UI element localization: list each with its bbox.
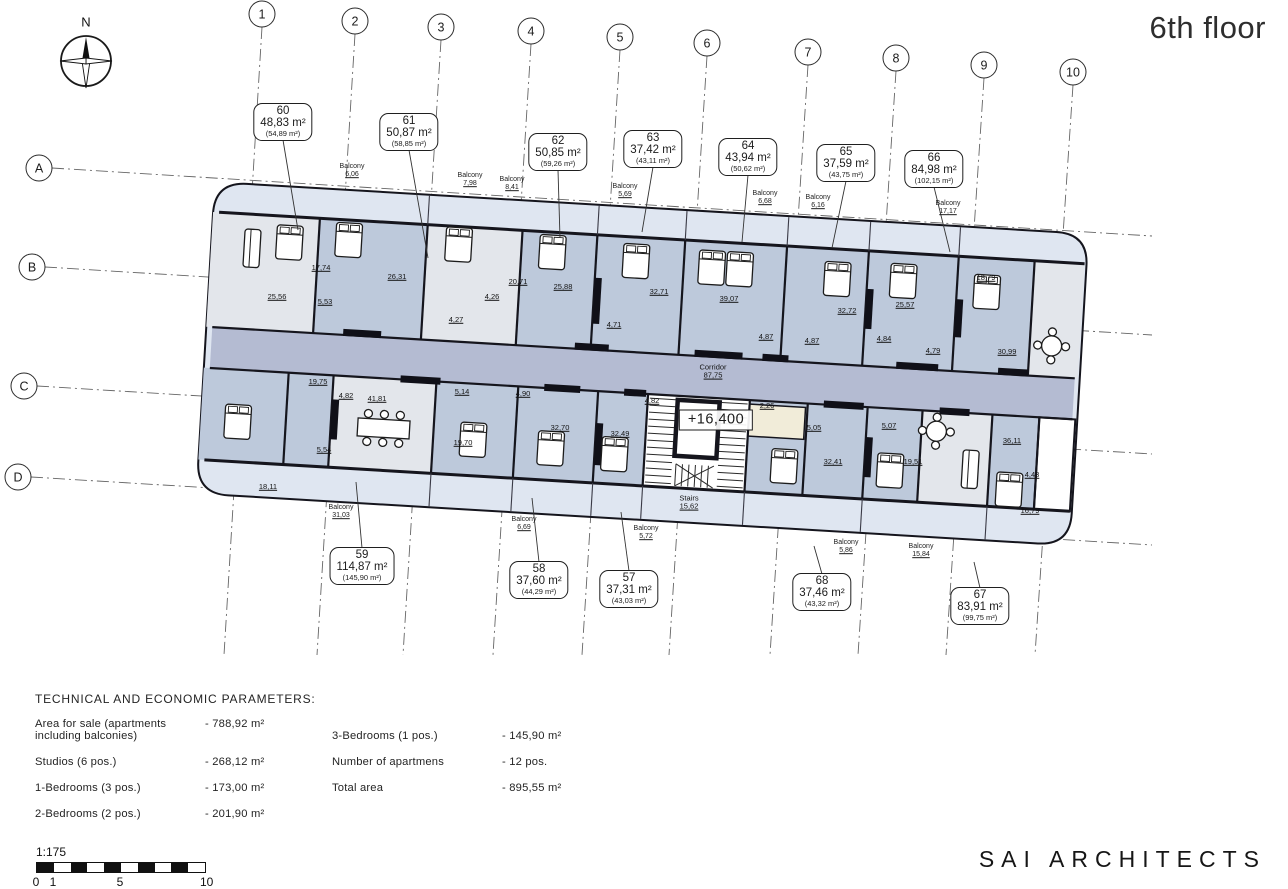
bed-icon	[459, 422, 487, 457]
bed-icon	[600, 436, 628, 471]
scale-tick-label: 10 m	[200, 875, 224, 889]
param-row: Area for sale (apartments including balc…	[35, 718, 264, 742]
bed-icon	[973, 274, 1001, 309]
floor-plan: N12345678910ABCD6048,83 m²(54,89 m²)6150…	[0, 0, 1288, 889]
param-row: Studios (6 pos.)- 268,12 m²	[35, 756, 264, 768]
bed-icon	[823, 261, 851, 296]
bed-icon	[538, 234, 566, 269]
bed-icon	[275, 225, 303, 260]
param-value: - 12 pos.	[502, 756, 547, 768]
param-label: 1-Bedrooms (3 pos.)	[35, 782, 205, 794]
param-row: 1-Bedrooms (3 pos.)- 173,00 m²	[35, 782, 264, 794]
param-value: - 145,90 m²	[502, 730, 561, 742]
param-value: - 201,90 m²	[205, 808, 264, 820]
scale-tick-label: 0	[33, 875, 40, 889]
bed-icon	[889, 263, 917, 298]
logo: SAI ARCHITECTS	[979, 846, 1266, 873]
bed-icon	[770, 449, 798, 484]
sofa-icon	[961, 450, 979, 489]
param-label: 3-Bedrooms (1 pos.)	[332, 730, 502, 742]
param-value: - 173,00 m²	[205, 782, 264, 794]
param-row: Number of apartmens- 12 pos.	[332, 756, 547, 768]
param-value: - 788,92 m²	[205, 718, 264, 742]
scale-tick-label: 1	[50, 875, 57, 889]
scale-bar-graphic	[36, 862, 206, 873]
param-label: Area for sale (apartments including balc…	[35, 718, 205, 742]
bed-icon	[445, 227, 473, 262]
bed-icon	[726, 252, 754, 287]
scale-segment	[171, 863, 188, 872]
bed-icon	[698, 250, 726, 285]
param-row: 3-Bedrooms (1 pos.)- 145,90 m²	[332, 730, 561, 742]
param-label: Number of apartmens	[332, 756, 502, 768]
sofa-icon	[243, 229, 261, 268]
scale-ticks: 01510 m	[36, 875, 236, 889]
param-value: - 268,12 m²	[205, 756, 264, 768]
page-title: 6th floor	[1149, 10, 1266, 46]
param-value: - 895,55 m²	[502, 782, 561, 794]
scale-segment	[138, 863, 155, 872]
param-label: Studios (6 pos.)	[35, 756, 205, 768]
param-row: 2-Bedrooms (2 pos.)- 201,90 m²	[35, 808, 264, 820]
dining-table-icon	[357, 409, 411, 448]
scale-segment	[37, 863, 54, 872]
bed-icon	[622, 243, 650, 278]
scale-ratio: 1:175	[36, 845, 236, 859]
scale-segment	[71, 863, 88, 872]
bed-icon	[537, 431, 565, 466]
compass-icon	[60, 36, 112, 88]
bed-icon	[876, 453, 904, 488]
param-label: Total area	[332, 782, 502, 794]
bed-icon	[335, 222, 363, 257]
param-row: Total area- 895,55 m²	[332, 782, 561, 794]
scale-tick-label: 5	[117, 875, 124, 889]
scale-segment	[104, 863, 121, 872]
bed-icon	[224, 404, 252, 439]
bed-icon	[995, 472, 1023, 507]
parameters-title: TECHNICAL AND ECONOMIC PARAMETERS:	[35, 692, 316, 706]
param-label: 2-Bedrooms (2 pos.)	[35, 808, 205, 820]
scale-bar: 1:175 01510 m	[36, 845, 236, 889]
